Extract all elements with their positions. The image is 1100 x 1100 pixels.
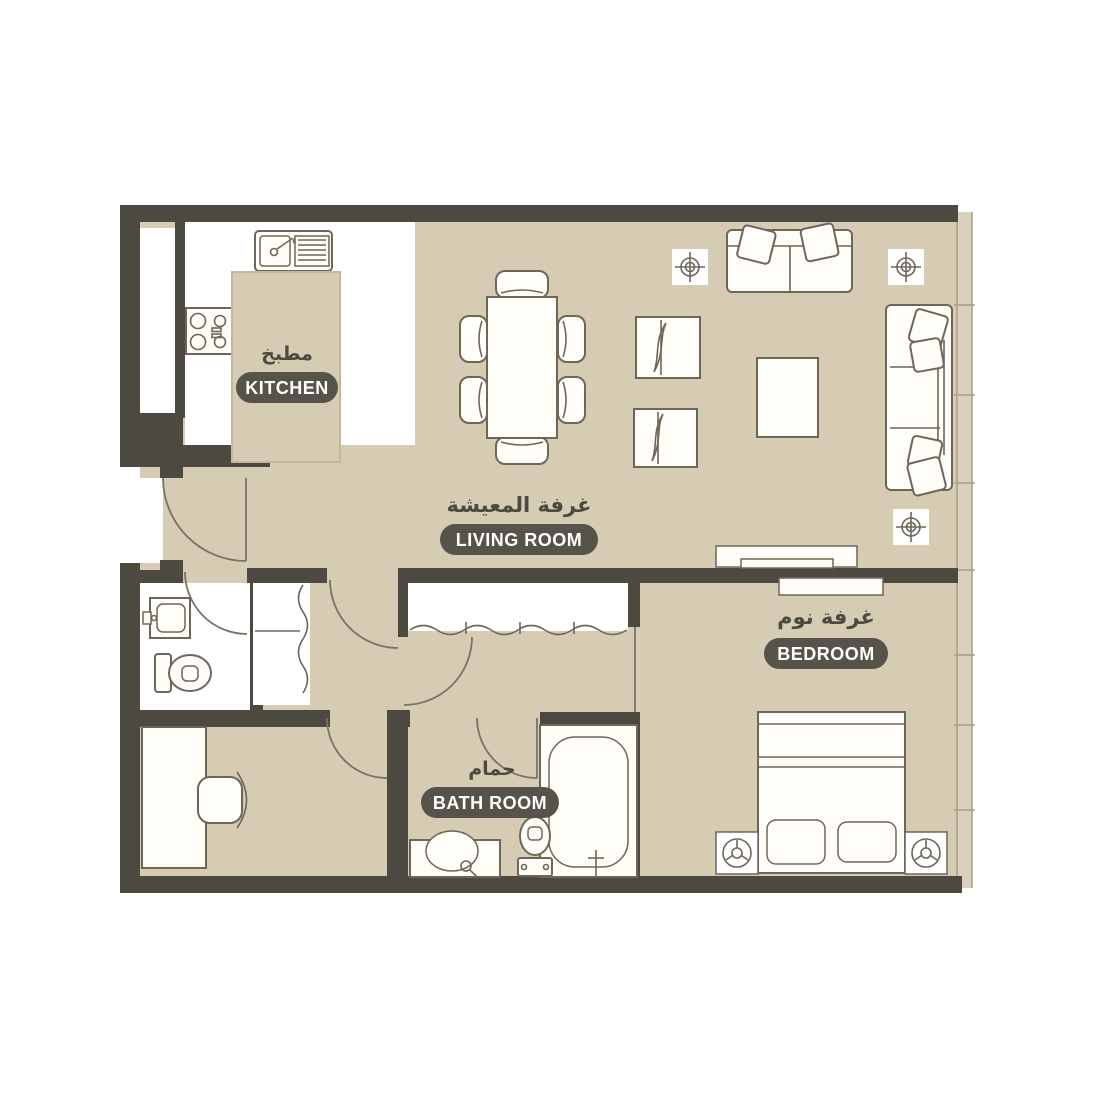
- bedroom-label-pill: BEDROOM: [764, 638, 888, 669]
- ceiling-light-3: [893, 509, 929, 545]
- wall-hall-south: [140, 710, 330, 727]
- entry-closet: [253, 583, 310, 705]
- floor-plan-drawing: مطبخ KITCHEN: [0, 0, 1100, 1100]
- wc-toilet: [155, 654, 211, 692]
- wall-west-upper: [120, 205, 140, 445]
- bathroom-toilet: [518, 817, 552, 876]
- floor-plan-page: مطبخ KITCHEN: [0, 0, 1100, 1100]
- nightstand-right: [905, 832, 947, 874]
- dining-chair-top: [496, 271, 548, 298]
- closet-body: [408, 583, 628, 631]
- wall-west-lower: [120, 563, 140, 893]
- wall-bath-west-stub: [387, 710, 410, 727]
- living-room-label-arabic: غرفة المعيشة: [447, 493, 592, 517]
- window-strip: [954, 212, 975, 888]
- kitchen-island: [232, 272, 340, 462]
- bedroom-dresser: [779, 578, 883, 595]
- bedroom-label-arabic: غرفة نوم: [777, 605, 875, 629]
- living-room-label-pill: LIVING ROOM: [440, 524, 598, 555]
- wall-wc-door-jamb: [160, 560, 183, 572]
- tv: [741, 559, 833, 568]
- dining-chair-right-2: [558, 377, 585, 423]
- accent-chair-1: [636, 317, 700, 378]
- wc-sink: [143, 598, 190, 638]
- wall-shaft-inner: [175, 222, 185, 418]
- kitchen-label-pill: KITCHEN: [236, 372, 338, 403]
- living-room-label-text: LIVING ROOM: [456, 530, 583, 550]
- dining-chair-right-1: [558, 316, 585, 362]
- sofa-pillow: [910, 338, 945, 373]
- kitchen-label-text: KITCHEN: [245, 378, 329, 398]
- service-shaft: [140, 228, 175, 413]
- wall-closet-jamb: [628, 581, 640, 627]
- bed-pillow: [767, 820, 825, 864]
- accent-chair-2: [634, 409, 697, 467]
- wall-north: [120, 205, 958, 222]
- bathroom-label-text: BATH ROOM: [433, 793, 547, 813]
- dining-chair-bottom: [496, 437, 548, 464]
- kitchen-label-arabic: مطبخ: [261, 343, 313, 365]
- nightstand-left: [716, 832, 758, 874]
- dining-chair-left-2: [460, 377, 487, 423]
- stove: [186, 308, 232, 354]
- window-glass-band: [957, 212, 972, 888]
- bed: [758, 712, 905, 873]
- bathroom-label-arabic: حمام: [468, 758, 516, 780]
- wall-hall-a2: [247, 568, 327, 583]
- sofa-pillow: [800, 223, 839, 262]
- wall-room-bath-divider: [387, 727, 408, 877]
- ceiling-light-2: [888, 249, 924, 285]
- kitchen-sink-unit: [255, 231, 332, 271]
- dining-table: [487, 297, 557, 438]
- hallway-closet: [408, 583, 628, 635]
- wall-corridor-stub: [398, 583, 408, 637]
- entry-recess: [120, 478, 163, 563]
- bedroom-label-text: BEDROOM: [777, 644, 875, 664]
- dining-chair-left-1: [460, 316, 487, 362]
- wall-hall-a3: [398, 568, 640, 583]
- tv-console: [716, 546, 857, 568]
- wall-south: [120, 876, 962, 893]
- wall-shaft-bottom: [130, 413, 183, 443]
- sofa-right: [886, 305, 952, 496]
- sofa-top: [727, 223, 852, 292]
- sofa-pillow: [736, 225, 776, 265]
- desk: [142, 727, 206, 868]
- wall-entry-jamb: [160, 467, 183, 478]
- sofa-pillow: [907, 456, 947, 496]
- ceiling-light-1: [672, 249, 708, 285]
- bed-pillow: [838, 822, 896, 862]
- desk-chair: [198, 772, 247, 828]
- bathroom-label-pill: BATH ROOM: [421, 787, 559, 818]
- coffee-table: [757, 358, 818, 437]
- kitchen-drainboard: [295, 236, 329, 266]
- closet-body: [253, 583, 310, 705]
